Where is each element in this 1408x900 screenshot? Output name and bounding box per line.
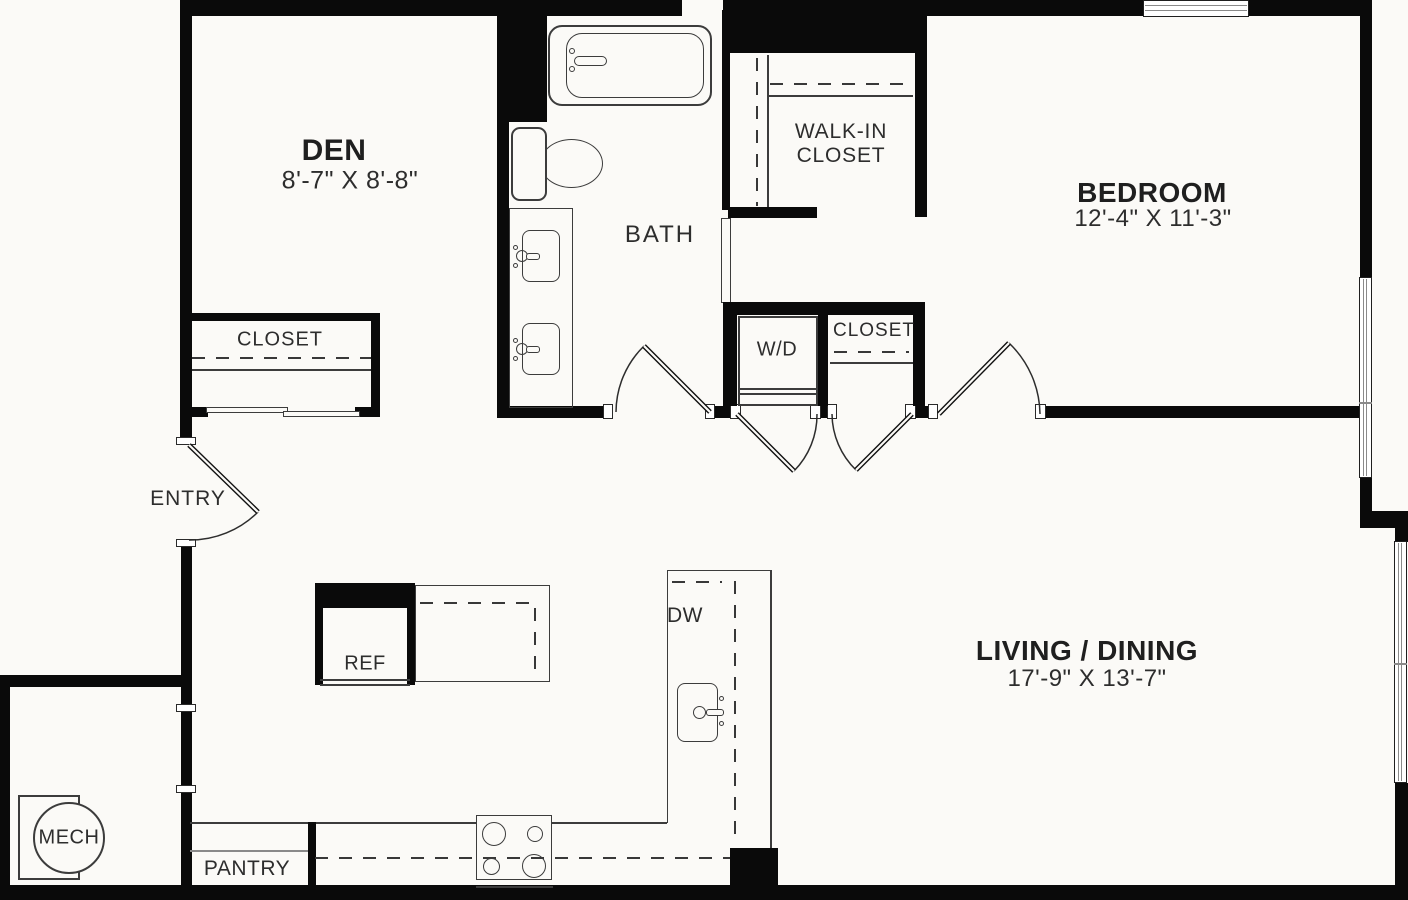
door-jamb — [176, 539, 196, 547]
wall — [1046, 406, 1360, 418]
bath-label: BATH — [625, 221, 695, 249]
kitchen-counter — [415, 585, 550, 682]
wall — [913, 302, 925, 406]
wall — [407, 583, 415, 685]
window-mullion — [1394, 663, 1407, 665]
door-jamb — [176, 785, 196, 793]
wall — [315, 583, 415, 608]
sink-faucet-dot — [513, 263, 518, 268]
wall — [818, 315, 828, 406]
walk-in-closet-label: WALK-IN CLOSET — [776, 120, 906, 168]
island-dashed-line — [672, 581, 722, 583]
living-dining-dimensions: 17'-9" X 13'-7" — [1007, 665, 1166, 693]
closet-rod-dashed-line — [770, 83, 913, 85]
wall — [728, 207, 817, 218]
den-label: DEN — [302, 134, 367, 168]
bathtub-faucet-handle — [569, 66, 575, 72]
wall — [497, 0, 547, 122]
pantry-shelf-line — [190, 850, 308, 852]
wall — [1395, 528, 1408, 542]
mech-label: MECH — [39, 827, 100, 850]
wall — [1395, 783, 1408, 900]
window-pane-line — [1145, 5, 1247, 6]
floor-plan: DEN 8'-7" X 8'-8" CLOSET BATH WALK-IN CL… — [0, 0, 1408, 900]
den-closet-label: CLOSET — [237, 329, 323, 352]
upper-cabinet-dashed-line — [534, 608, 536, 678]
closet-rod-line — [768, 95, 913, 97]
door-jamb — [928, 404, 938, 419]
sink-faucet-dot — [719, 696, 724, 701]
sliding-door-panel — [283, 411, 360, 417]
wall — [723, 10, 917, 53]
sink-faucet-dot — [513, 338, 518, 343]
wall — [497, 122, 509, 406]
wall — [1360, 478, 1372, 511]
upper-cabinet-dashed-line — [420, 602, 533, 604]
door-panel — [181, 712, 192, 785]
wall — [0, 675, 190, 687]
window-pane-line — [1366, 279, 1367, 476]
wall — [180, 407, 208, 417]
bathtub-faucet-handle — [569, 48, 575, 54]
washer-dryer-front-line — [740, 388, 816, 390]
wall — [0, 675, 10, 900]
sink-faucet-dot — [513, 356, 518, 361]
wall — [181, 793, 192, 885]
stove-burner — [482, 822, 506, 846]
wall — [180, 0, 682, 16]
door-jamb — [176, 437, 196, 445]
wall — [371, 313, 380, 417]
door-jamb — [730, 404, 741, 419]
wall — [730, 848, 778, 886]
wall — [315, 583, 323, 685]
dishwasher-label: DW — [667, 604, 703, 628]
sink-faucet-spout — [706, 709, 724, 716]
closet-rod-dashed-line — [756, 58, 758, 206]
wall-post — [721, 218, 731, 303]
den-dimensions: 8'-7" X 8'-8" — [282, 167, 419, 196]
upper-cabinet-dashed-line — [315, 857, 730, 859]
wall — [180, 0, 192, 437]
window-pane-line — [1363, 279, 1364, 476]
toilet-tank — [511, 127, 547, 201]
refrigerator-front-line — [320, 684, 410, 686]
sink-faucet-knob — [693, 706, 706, 719]
closet-rod-line — [767, 55, 769, 207]
window-pane-line — [1398, 543, 1399, 781]
refrigerator-front-line — [320, 679, 410, 681]
pantry-label: PANTRY — [204, 857, 290, 881]
wall — [730, 302, 923, 315]
island-dashed-line — [734, 581, 736, 845]
door-jamb — [603, 404, 613, 419]
window-pane-line — [1145, 10, 1247, 11]
door-jamb — [827, 404, 837, 419]
wall — [1360, 16, 1372, 277]
stove-burner — [527, 826, 543, 842]
wall — [1249, 0, 1372, 16]
window-mullion — [1359, 402, 1372, 404]
living-dining-label: LIVING / DINING — [976, 635, 1198, 667]
wall — [308, 822, 316, 886]
wall — [180, 313, 380, 321]
kitchen-counter-edge — [190, 822, 476, 824]
entry-label: ENTRY — [150, 487, 226, 511]
bathtub-spout — [574, 56, 607, 66]
closet-rod-dashed-line — [192, 357, 371, 359]
bedroom-dimensions: 12'-4" X 11'-3" — [1074, 205, 1231, 233]
closet-shelf-line — [830, 362, 913, 364]
closet-rod-dashed-line — [834, 351, 909, 353]
wall — [0, 885, 1408, 900]
sink-faucet-spout — [526, 346, 540, 353]
sink-faucet-dot — [719, 721, 724, 726]
door-jamb — [810, 404, 821, 419]
wall — [723, 302, 737, 406]
sink-faucet-dot — [513, 245, 518, 250]
washer-dryer-front-line — [740, 393, 816, 395]
window-pane-line — [1401, 543, 1402, 781]
window — [1143, 0, 1249, 17]
door-jamb — [905, 404, 916, 419]
closet-shelf-line — [192, 369, 371, 371]
stove-burner — [522, 854, 546, 878]
refrigerator-label: REF — [344, 653, 386, 676]
sink-faucet-spout — [526, 253, 540, 260]
door-jamb — [176, 704, 196, 712]
stove-burner — [483, 858, 500, 875]
wall — [1360, 511, 1408, 528]
stove-front-line — [476, 886, 553, 888]
wall — [915, 10, 927, 217]
sliding-door-panel — [206, 407, 288, 413]
washer-dryer-label: W/D — [757, 339, 797, 362]
bedroom-closet-label: CLOSET — [833, 320, 915, 342]
toilet-bowl — [540, 139, 603, 188]
door-jamb — [705, 404, 715, 419]
door-jamb — [1035, 404, 1046, 419]
kitchen-island-edge — [770, 570, 772, 848]
kitchen-counter-edge — [552, 822, 667, 824]
